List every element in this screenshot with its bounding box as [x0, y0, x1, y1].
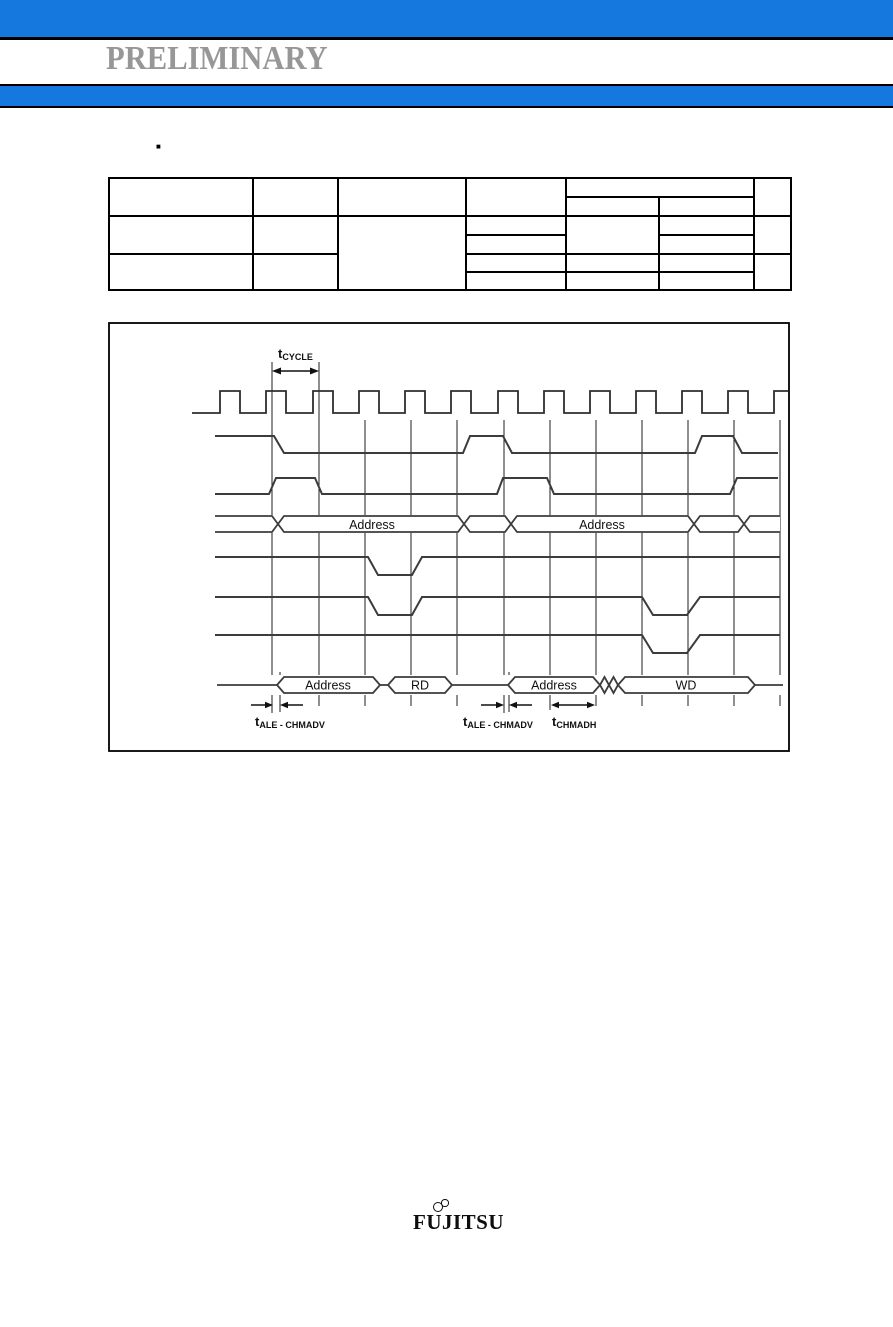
table-cell: [754, 216, 791, 254]
fujitsu-logo-text: FUJITSU: [413, 1210, 504, 1234]
write-strobe-waveform: [215, 635, 780, 653]
table-cell: [466, 216, 566, 235]
table-cell: [659, 235, 754, 254]
table-cell: [566, 216, 659, 254]
table-cell: [253, 178, 338, 216]
timing-diagram: Address Address Address: [108, 322, 790, 752]
table-cell: [466, 272, 566, 290]
table-cell: [566, 254, 659, 272]
tcycle-label: tCYCLE: [278, 346, 313, 362]
muxed-bus-label-address-1: Address: [305, 679, 351, 693]
table-cell: [109, 178, 253, 216]
read-strobe-waveform: [215, 557, 780, 575]
table-cell: [466, 235, 566, 254]
top-banner-bar: [0, 0, 893, 40]
table-cell: [566, 178, 754, 197]
table-cell: [338, 216, 466, 290]
preliminary-watermark: PRELIMINARY: [106, 42, 328, 76]
address-bus-mask: [215, 515, 780, 533]
table-cell: [338, 178, 466, 216]
muxed-bus-label-rd: RD: [411, 679, 429, 693]
data-strobe-waveform: [215, 597, 780, 615]
clock-waveform: [192, 391, 788, 413]
table-cell: [659, 254, 754, 272]
chip-enable-waveform: [215, 436, 778, 453]
table-cell: [253, 254, 338, 290]
grid-lines: [272, 362, 780, 713]
muxed-bus-label-address-2: Address: [531, 679, 577, 693]
list-bullet: ■: [156, 143, 161, 151]
fujitsu-logo: FUJITSU: [413, 1212, 503, 1234]
table-cell: [659, 216, 754, 235]
tale-chmadv-label-1: tALE - CHMADV: [255, 714, 325, 730]
table-cell: [659, 272, 754, 290]
table-cell: [754, 254, 791, 290]
tchmadh-label: tCHMADH: [552, 714, 596, 730]
timing-diagram-svg: Address Address Address: [108, 322, 790, 752]
tcycle-arrow: [272, 368, 319, 375]
table-cell: [754, 178, 791, 216]
address-bus-label-1: Address: [349, 518, 395, 532]
table-cell: [659, 197, 754, 216]
table-cell: [109, 254, 253, 290]
tale-chmadv-arrow-1: [251, 702, 303, 708]
tale-chmadv-label-2: tALE - CHMADV: [463, 714, 533, 730]
tchmadh-arrow: [551, 702, 595, 708]
table-cell: [253, 216, 338, 254]
fujitsu-rings-icon: [433, 1199, 459, 1213]
table-cell: [566, 272, 659, 290]
tale-chmadv-arrow-2: [481, 702, 532, 708]
muxed-bus-label-wd: WD: [676, 679, 697, 693]
table-cell: [466, 254, 566, 272]
address-bus-label-2: Address: [579, 518, 625, 532]
table-cell: [109, 216, 253, 254]
datasheet-page: PRELIMINARY ■: [0, 0, 893, 1327]
table-cell: [466, 178, 566, 216]
ale-waveform: [215, 478, 778, 494]
section-banner-bar: [0, 84, 893, 108]
spec-table: [108, 177, 792, 291]
table-cell: [566, 197, 659, 216]
